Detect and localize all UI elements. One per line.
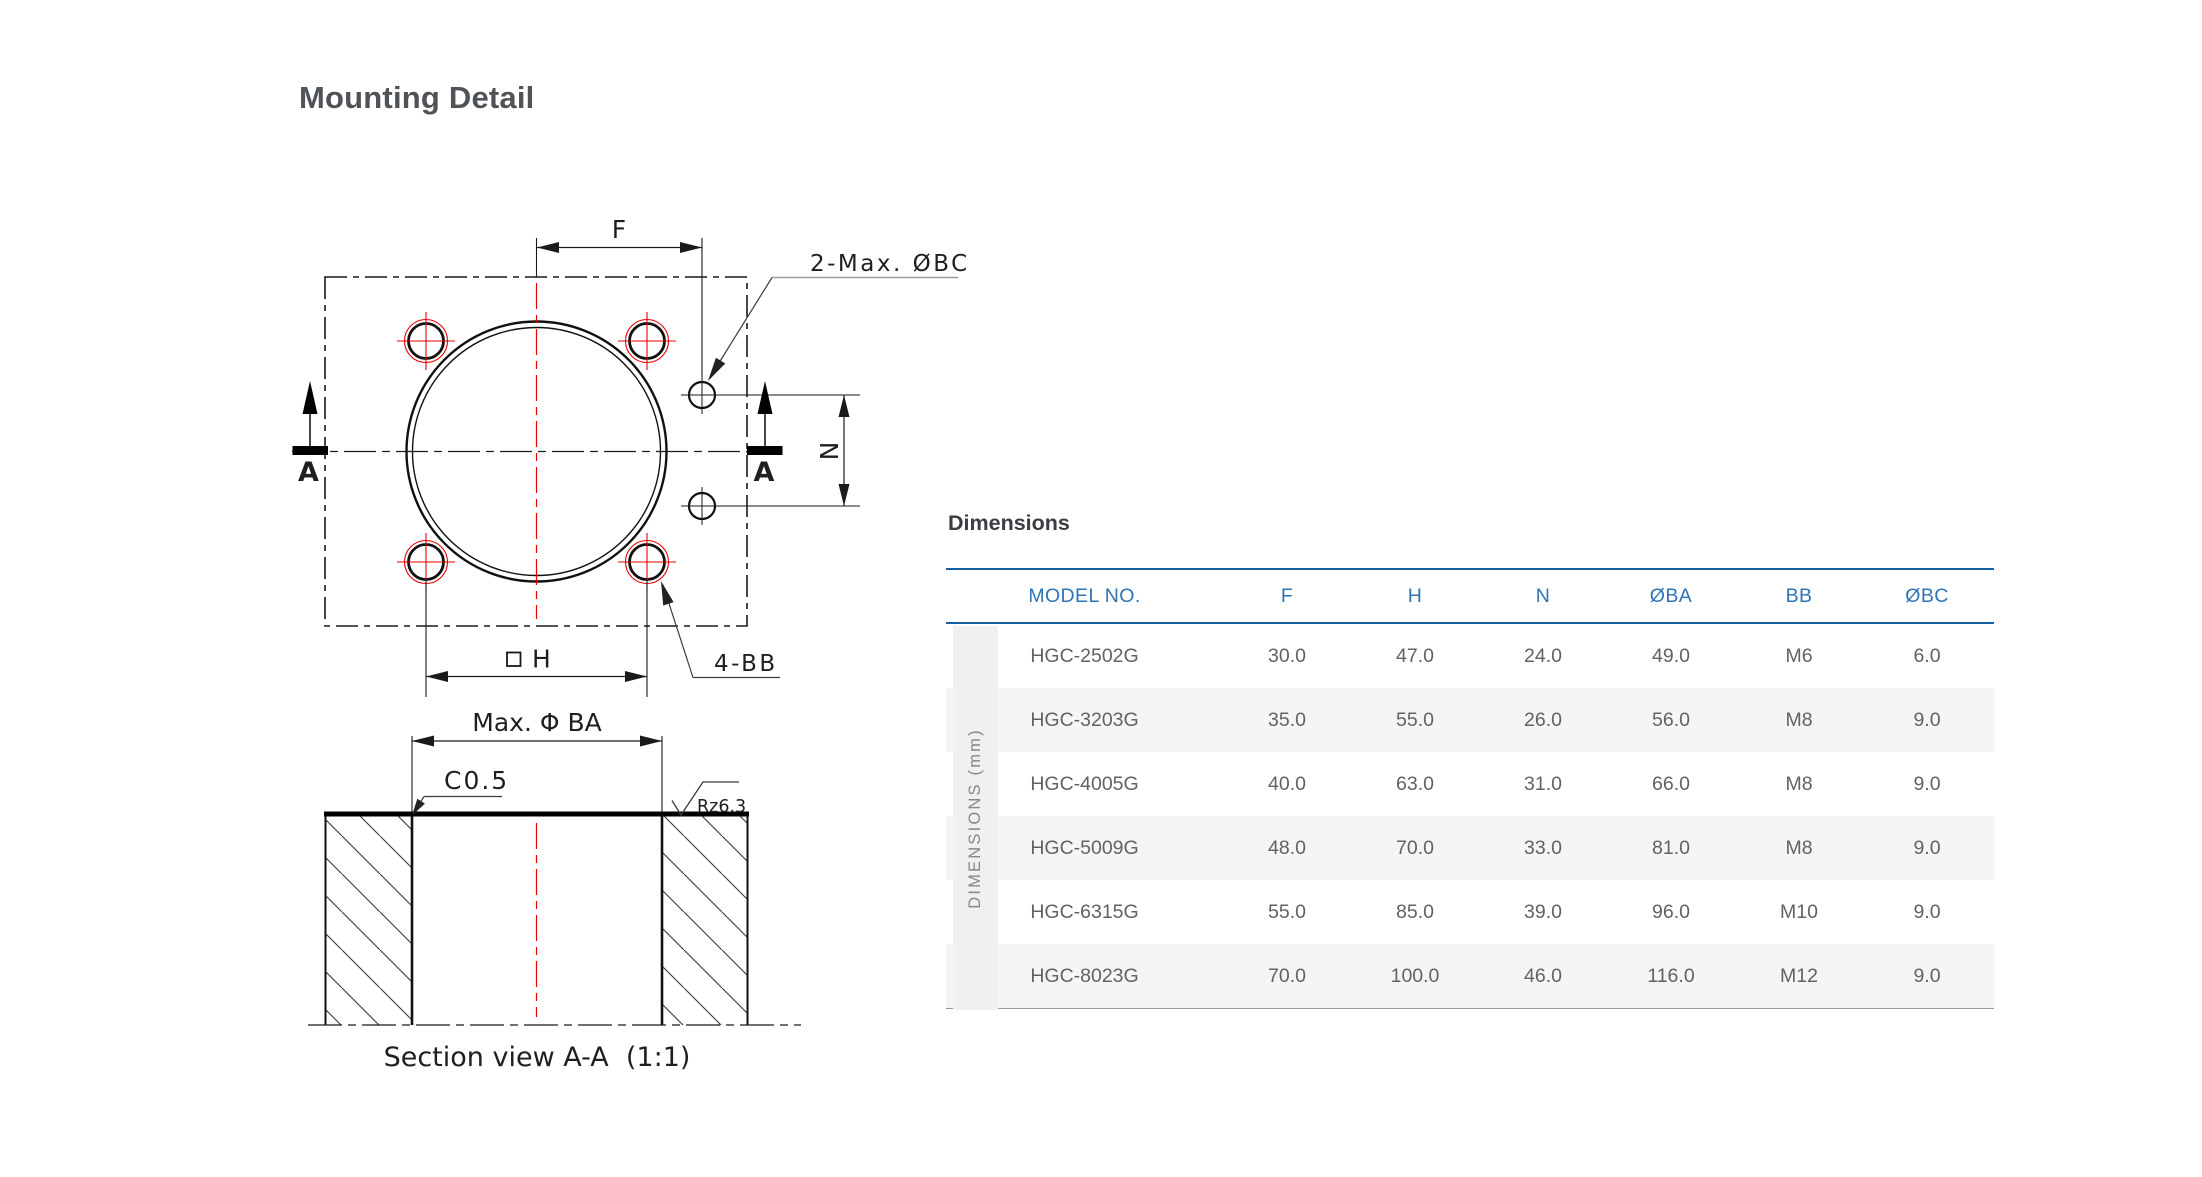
dim-ba-label: Max. Φ BA <box>472 708 601 737</box>
dim-f-label: F <box>612 215 626 244</box>
table-row: HGC-5009G 48.0 70.0 33.0 81.0 M8 9.0 <box>946 816 1994 880</box>
table-caption: Dimensions <box>948 510 1994 536</box>
square-symbol <box>507 653 521 667</box>
chamfer-label: C0.5 <box>444 766 509 795</box>
cell-n: 39.0 <box>1479 901 1607 924</box>
cell-h: 55.0 <box>1351 709 1479 732</box>
right-wall-hatch <box>662 815 748 1025</box>
cell-n: 24.0 <box>1479 645 1607 668</box>
cell-h: 70.0 <box>1351 837 1479 860</box>
section-marker-right: A <box>747 381 783 488</box>
col-header-bb: BB <box>1735 585 1863 608</box>
cell-f: 70.0 <box>1223 965 1351 988</box>
table-header-row: MODEL NO. F H N ØBA BB ØBC <box>946 570 1994 624</box>
cell-ba: 81.0 <box>1607 837 1735 860</box>
cell-ba: 96.0 <box>1607 901 1735 924</box>
section-caption: Section view A-A (1:1) <box>384 1042 691 1073</box>
dim-h-label: H <box>532 645 551 674</box>
cell-f: 35.0 <box>1223 709 1351 732</box>
callout-bb: 4-BB <box>661 581 780 678</box>
callout-chamfer: C0.5 <box>412 766 509 816</box>
cell-bc: 9.0 <box>1863 709 1991 732</box>
corner-hole-top-right <box>618 312 676 370</box>
dimension-n: N <box>815 395 850 506</box>
side-label: DIMENSIONS (mm) <box>966 728 985 909</box>
col-header-f: F <box>1223 585 1351 608</box>
callout-bb-label: 4-BB <box>714 651 778 677</box>
left-wall-hatch <box>326 815 412 1025</box>
cell-bc: 9.0 <box>1863 901 1991 924</box>
cell-h: 85.0 <box>1351 901 1479 924</box>
roughness-label: Rz6.3 <box>697 797 746 817</box>
dim-n-label: N <box>815 442 844 461</box>
table-row: HGC-8023G 70.0 100.0 46.0 116.0 M12 9.0 <box>946 944 1994 1008</box>
cell-bc: 9.0 <box>1863 837 1991 860</box>
cell-bc: 9.0 <box>1863 773 1991 796</box>
cell-h: 100.0 <box>1351 965 1479 988</box>
roughness-symbol: Rz6.3 <box>672 782 746 817</box>
section-marker-left-label: A <box>298 457 319 488</box>
cell-n: 33.0 <box>1479 837 1607 860</box>
cell-ba: 66.0 <box>1607 773 1735 796</box>
top-view: F N A A <box>292 215 970 697</box>
cell-bb: M8 <box>1735 837 1863 860</box>
col-header-bc: ØBC <box>1863 585 1991 608</box>
cell-bb: M8 <box>1735 773 1863 796</box>
table-row: HGC-2502G 30.0 47.0 24.0 49.0 M6 6.0 <box>946 624 1994 688</box>
cell-bb: M10 <box>1735 901 1863 924</box>
cell-n: 31.0 <box>1479 773 1607 796</box>
table-row: HGC-4005G 40.0 63.0 31.0 66.0 M8 9.0 <box>946 752 1994 816</box>
dimensions-table: MODEL NO. F H N ØBA BB ØBC HGC-2502G 30.… <box>946 568 1994 1009</box>
table-row: HGC-3203G 35.0 55.0 26.0 56.0 M8 9.0 <box>946 688 1994 752</box>
cell-bc: 6.0 <box>1863 645 1991 668</box>
dimensions-panel: Dimensions MODEL NO. F H N ØBA BB ØBC HG… <box>946 510 1994 1009</box>
cell-f: 30.0 <box>1223 645 1351 668</box>
cell-f: 48.0 <box>1223 837 1351 860</box>
bc-hole-bottom <box>681 487 860 525</box>
cell-h: 47.0 <box>1351 645 1479 668</box>
cell-h: 63.0 <box>1351 773 1479 796</box>
col-header-n: N <box>1479 585 1607 608</box>
cell-ba: 49.0 <box>1607 645 1735 668</box>
section-view: Max. Φ BA C0.5 Rz6.3 Section view A-A (1… <box>308 708 801 1073</box>
side-label-strip: DIMENSIONS (mm) <box>953 626 998 1010</box>
cell-f: 55.0 <box>1223 901 1351 924</box>
section-marker-left: A <box>293 381 329 488</box>
cell-n: 26.0 <box>1479 709 1607 732</box>
cell-bb: M6 <box>1735 645 1863 668</box>
col-header-model: MODEL NO. <box>946 585 1223 608</box>
mounting-drawing: F N A A <box>0 0 1100 1177</box>
cell-n: 46.0 <box>1479 965 1607 988</box>
col-header-ba: ØBA <box>1607 585 1735 608</box>
cell-bc: 9.0 <box>1863 965 1991 988</box>
cell-bb: M12 <box>1735 965 1863 988</box>
callout-bc-label: 2-Max. ØBC <box>810 251 970 277</box>
cell-bb: M8 <box>1735 709 1863 732</box>
col-header-h: H <box>1351 585 1479 608</box>
cell-ba: 116.0 <box>1607 965 1735 988</box>
corner-hole-top-left <box>397 312 455 370</box>
table-row: HGC-6315G 55.0 85.0 39.0 96.0 M10 9.0 <box>946 880 1994 944</box>
section-marker-right-label: A <box>754 457 775 488</box>
page: Mounting Detail <box>0 0 2202 1177</box>
cell-f: 40.0 <box>1223 773 1351 796</box>
cell-ba: 56.0 <box>1607 709 1735 732</box>
